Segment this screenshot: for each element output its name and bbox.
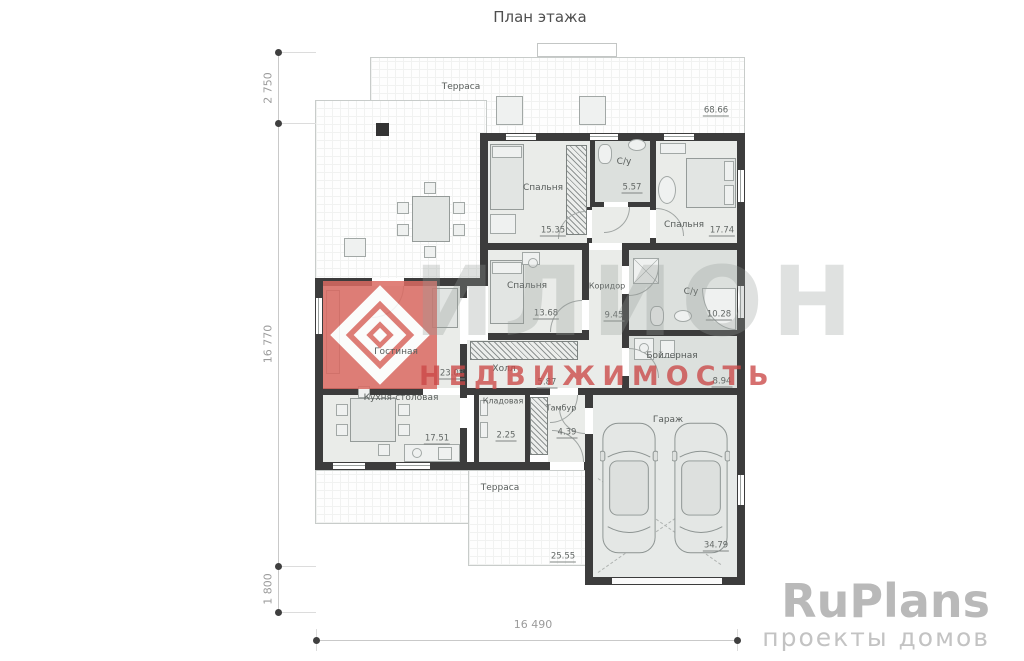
pillow	[724, 161, 734, 181]
kitchen-sink	[412, 448, 422, 458]
watermark-line: НЕДВИЖИМОСТЬ	[419, 363, 776, 390]
wall-bath1-left	[590, 141, 595, 207]
chair	[398, 424, 410, 436]
room-area-vestibule: 4.39	[557, 428, 578, 439]
dimension-dot	[275, 120, 282, 127]
window	[333, 462, 365, 470]
terrace-chair	[397, 202, 409, 214]
room-area-kitchen: 17.51	[424, 434, 450, 445]
room-label-terrace-bottom: Терраса	[481, 483, 519, 493]
flower-box	[496, 96, 523, 125]
garage-gate	[612, 577, 722, 585]
dimension-dot	[275, 609, 282, 616]
window	[590, 133, 618, 141]
desk	[490, 214, 516, 234]
sink	[628, 139, 646, 151]
room-area-bath1: 5.57	[622, 183, 643, 194]
room-label-bedroom1: Спальня	[523, 183, 563, 193]
pillow	[492, 146, 522, 158]
vestibule-garage-gap	[585, 408, 593, 434]
floor-plan-canvas: План этажа	[0, 0, 1024, 661]
terrace-column	[376, 123, 389, 136]
pillow	[724, 185, 734, 205]
room-label-bedroom2: Спальня	[664, 220, 704, 230]
window	[737, 170, 745, 202]
room-label-terrace-top: Терраса	[442, 82, 480, 92]
dimension-dot	[275, 49, 282, 56]
dimension-left-main: 16 770	[262, 325, 275, 364]
room-label-vestibule: Тамбур	[546, 404, 577, 413]
terrace-chair	[453, 202, 465, 214]
stove	[438, 447, 452, 460]
witness-line	[282, 612, 316, 613]
bedroom1-door-gap	[587, 210, 592, 238]
terrace-bottom-left	[315, 470, 475, 524]
chair	[336, 404, 348, 416]
dimension-left-top: 2 750	[262, 72, 275, 104]
terrace-chair	[424, 182, 436, 194]
dresser	[660, 143, 686, 154]
kitchen-hall-gap	[460, 398, 467, 428]
room-area-pantry: 2.25	[496, 431, 517, 442]
rug	[658, 176, 676, 204]
terrace-chair	[453, 224, 465, 236]
toilet	[598, 144, 612, 164]
car	[600, 418, 658, 558]
room-area-bedroom2: 17.74	[709, 226, 735, 237]
room-area-terrace-bottom: 25.55	[550, 552, 576, 563]
window	[396, 462, 430, 470]
room-label-living: Гостиная	[374, 347, 418, 357]
chair	[336, 424, 348, 436]
branding-block: RuPlans проекты домов	[762, 578, 990, 653]
flower-box	[579, 96, 606, 125]
wall-pantry-left	[474, 395, 479, 462]
room-area-garage: 34.79	[703, 541, 729, 552]
room-label-garage: Гараж	[653, 415, 683, 425]
plan-area-value: 68.66	[703, 106, 729, 117]
page-title: План этажа	[493, 8, 587, 26]
room-label-kitchen: Кухня-столовая	[364, 393, 439, 403]
dimension-dot	[275, 563, 282, 570]
car	[672, 418, 730, 558]
dimension-line-left	[278, 52, 279, 613]
window	[664, 133, 694, 141]
witness-line	[282, 52, 316, 53]
terrace-chair	[397, 224, 409, 236]
planter	[344, 238, 366, 257]
dimension-dot	[734, 637, 741, 644]
window	[737, 475, 745, 505]
terrace-step	[537, 43, 617, 57]
watermark-brand: ИЛИОН	[414, 254, 861, 350]
shelf	[480, 422, 488, 438]
chair	[398, 404, 410, 416]
terrace-table	[412, 196, 450, 242]
window	[506, 133, 536, 141]
ruplans-tagline: проекты домов	[762, 624, 990, 653]
ruplans-logo: RuPlans	[762, 578, 990, 624]
dimension-left-bottom: 1 800	[262, 573, 275, 605]
witness-line	[282, 123, 316, 124]
dining-table	[350, 398, 396, 442]
dimension-bottom: 16 490	[514, 618, 553, 631]
room-label-pantry: Кладовая	[483, 397, 524, 406]
chair	[378, 444, 390, 456]
window	[315, 298, 323, 334]
dimension-line-bottom	[316, 640, 737, 641]
room-area-bedroom1: 15.35	[540, 226, 566, 237]
room-label-bath1: С/у	[617, 157, 632, 167]
dimension-dot	[313, 637, 320, 644]
witness-line	[282, 566, 316, 567]
front-door-gap	[550, 462, 584, 470]
